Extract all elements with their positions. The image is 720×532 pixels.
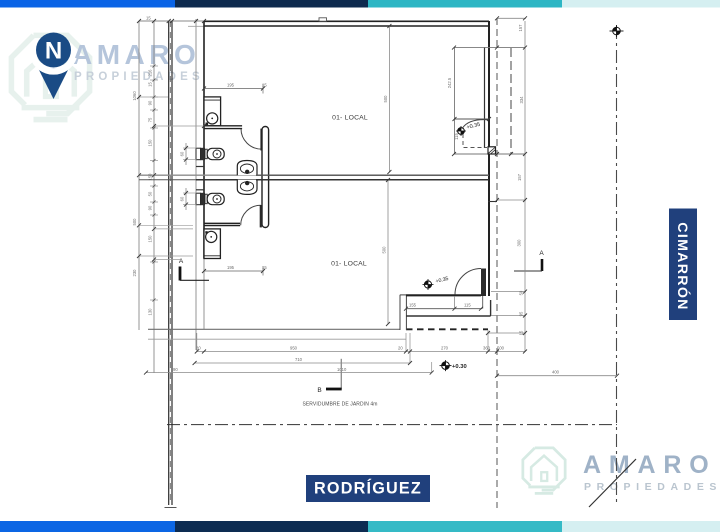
svg-text:500: 500 bbox=[132, 218, 137, 226]
svg-text:500: 500 bbox=[383, 95, 388, 103]
svg-text:216: 216 bbox=[148, 69, 153, 77]
svg-text:15: 15 bbox=[519, 330, 524, 335]
svg-text:157: 157 bbox=[518, 24, 523, 32]
svg-text:60: 60 bbox=[180, 151, 185, 156]
svg-text:300: 300 bbox=[517, 239, 522, 247]
svg-text:A: A bbox=[539, 250, 544, 257]
svg-text:50: 50 bbox=[519, 290, 524, 295]
svg-text:CIMARRÓN: CIMARRÓN bbox=[674, 222, 692, 310]
svg-text:270: 270 bbox=[441, 346, 449, 351]
svg-text:+0.30: +0.30 bbox=[452, 364, 467, 370]
svg-text:AMARO: AMARO bbox=[583, 451, 716, 479]
svg-text:90: 90 bbox=[148, 100, 153, 105]
svg-text:15: 15 bbox=[146, 16, 151, 21]
svg-text:01- LOCAL: 01- LOCAL bbox=[332, 115, 368, 122]
svg-text:130: 130 bbox=[148, 308, 153, 316]
svg-text:195: 195 bbox=[227, 265, 235, 270]
svg-text:195: 195 bbox=[227, 83, 235, 88]
svg-text:A: A bbox=[179, 258, 184, 265]
svg-text:1060: 1060 bbox=[132, 91, 137, 101]
svg-text:50: 50 bbox=[148, 191, 153, 196]
svg-text:230: 230 bbox=[132, 269, 137, 277]
svg-text:B: B bbox=[317, 387, 321, 394]
svg-text:150: 150 bbox=[148, 139, 153, 147]
svg-text:150: 150 bbox=[148, 235, 153, 243]
svg-text:95: 95 bbox=[519, 311, 524, 316]
svg-text:90: 90 bbox=[148, 205, 153, 210]
svg-text:N: N bbox=[45, 38, 62, 65]
svg-text:710: 710 bbox=[295, 357, 303, 362]
svg-text:20: 20 bbox=[398, 346, 403, 351]
svg-text:155: 155 bbox=[409, 303, 417, 308]
svg-text:AMARO: AMARO bbox=[72, 39, 200, 70]
svg-text:SERVIDUMBRE DE JARDIN 4m: SERVIDUMBRE DE JARDIN 4m bbox=[302, 402, 377, 408]
svg-text:950: 950 bbox=[290, 346, 298, 351]
svg-text:1010: 1010 bbox=[337, 367, 347, 372]
svg-text:115: 115 bbox=[454, 132, 459, 139]
svg-text:150: 150 bbox=[148, 173, 153, 181]
svg-text:75: 75 bbox=[148, 117, 153, 122]
svg-text:15: 15 bbox=[148, 82, 153, 87]
svg-text:115: 115 bbox=[464, 303, 471, 308]
svg-text:RODRÍGUEZ: RODRÍGUEZ bbox=[314, 479, 422, 498]
svg-text:242.5: 242.5 bbox=[447, 77, 452, 88]
svg-text:334: 334 bbox=[519, 96, 524, 104]
svg-text:400: 400 bbox=[552, 370, 560, 375]
svg-text:90: 90 bbox=[173, 367, 178, 372]
svg-text:60: 60 bbox=[180, 196, 185, 201]
svg-text:500: 500 bbox=[382, 246, 387, 254]
svg-text:157: 157 bbox=[517, 173, 522, 181]
svg-text:01- LOCAL: 01- LOCAL bbox=[331, 261, 367, 268]
